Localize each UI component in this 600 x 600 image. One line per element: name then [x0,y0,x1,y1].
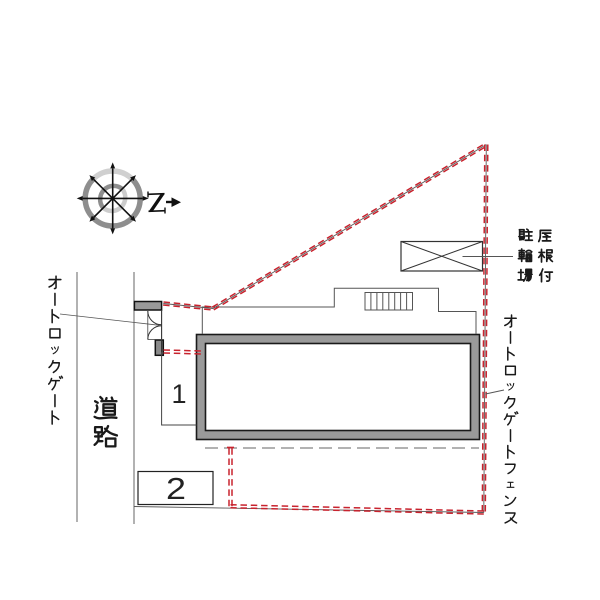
svg-text:1: 1 [171,379,186,409]
svg-text:2: 2 [166,471,186,506]
